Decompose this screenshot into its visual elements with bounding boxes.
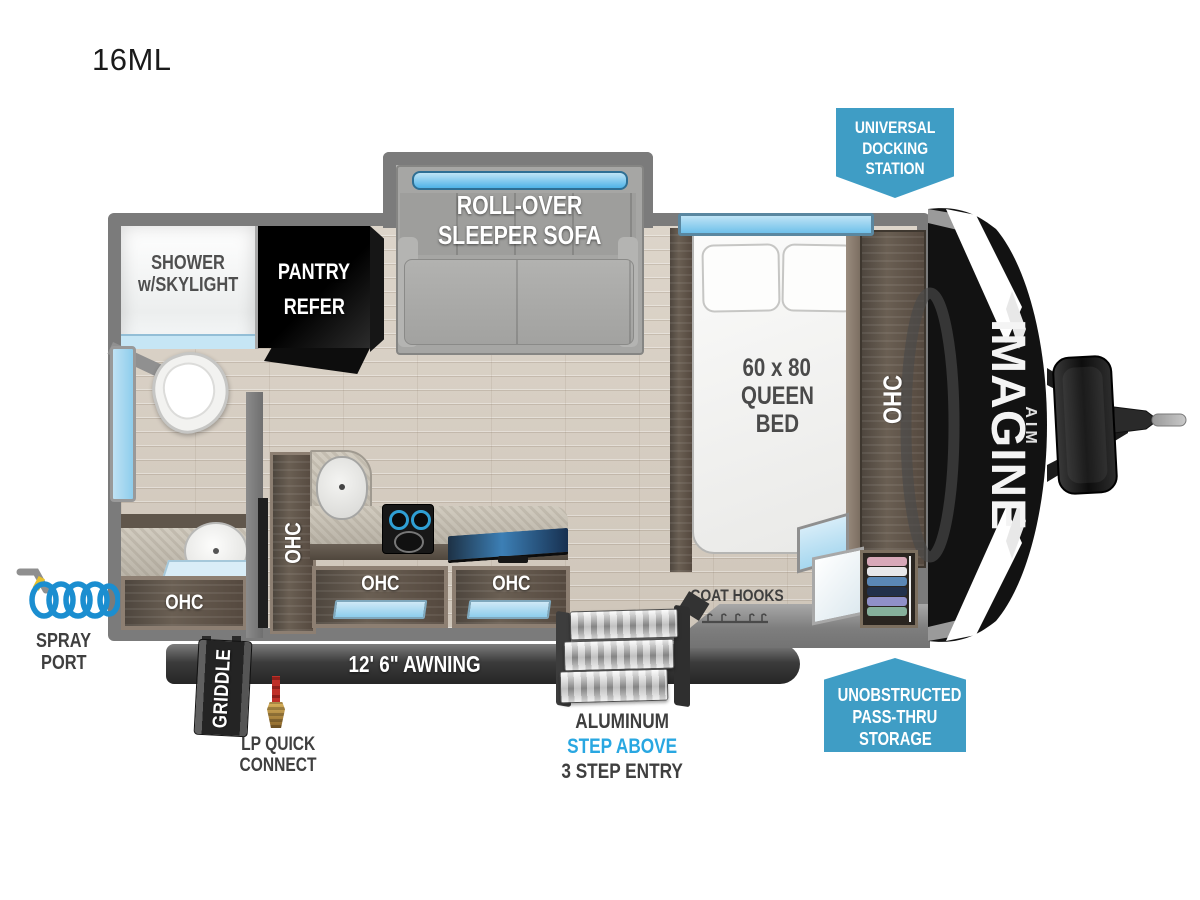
pantry-label: PANTRY REFER	[258, 254, 370, 324]
hitch-jack	[1152, 414, 1186, 426]
burner	[389, 510, 409, 530]
floorplan-diagram: 16ML ROLL-OVER SLEEPER SOFA SHOWER w/SKY…	[0, 0, 1200, 900]
clothes-item	[867, 597, 907, 606]
brand-aim: AIM	[1022, 406, 1039, 447]
mirror-panel	[812, 546, 864, 625]
lp-connect-label: LP QUICK CONNECT	[226, 734, 330, 777]
passthru-storage-callout: UNOBSTRUCTED PASS-THRU STORAGE	[824, 658, 966, 752]
ohc-label: OHC	[165, 591, 203, 615]
step-entry-label: ALUMINUM STEP ABOVE 3 STEP ENTRY	[545, 710, 700, 784]
window-under-cabinet	[467, 600, 552, 619]
awning-label: 12' 6" AWNING	[300, 651, 530, 677]
spray-port-icon	[12, 566, 120, 626]
lp-quick-connect-icon	[267, 702, 285, 728]
sofa-label: ROLL-OVER SLEEPER SOFA	[398, 191, 642, 251]
ohc-label: OHC	[361, 572, 399, 596]
overhead-cabinet-bathroom: OHC	[121, 576, 247, 630]
sleeper-sofa: ROLL-OVER SLEEPER SOFA	[396, 165, 644, 355]
ohc-label: OHC	[280, 522, 306, 564]
pantry-side-panel	[370, 226, 384, 352]
burner	[411, 510, 431, 530]
overhead-cabinet-kitchen-right: OHC	[452, 566, 570, 628]
shower-room: SHOWER w/SKYLIGHT	[121, 226, 259, 349]
clothes-item	[867, 607, 907, 616]
shower-glass-edge	[121, 334, 255, 349]
bed-platform-edge	[670, 228, 692, 572]
step-tread	[560, 669, 669, 704]
queen-bed: 60 x 80 QUEEN BED	[692, 228, 862, 554]
spray-port-label: SPRAY PORT	[18, 630, 110, 675]
sink-drain	[339, 484, 345, 490]
front-cap: IMAGINE AIM	[900, 195, 1200, 655]
window-under-cabinet	[333, 600, 428, 619]
burner-large	[394, 531, 424, 553]
sofa-seat-cushions	[404, 259, 634, 345]
slideout-window	[412, 171, 628, 190]
pantry-refer-cabinet: PANTRY REFER	[258, 226, 370, 348]
step-tread	[564, 639, 675, 672]
ohc-label: OHC	[492, 572, 530, 596]
hitch-coupler	[1114, 407, 1158, 433]
lp-hose	[272, 676, 280, 704]
wardrobe-pole	[909, 556, 911, 622]
griddle-flap: GRIDDLE	[194, 639, 253, 738]
kitchen-sink	[316, 456, 368, 520]
clothes-item	[867, 587, 907, 596]
clothes-item	[867, 577, 907, 586]
propane-tank-highlight	[1062, 366, 1108, 484]
coat-hooks-icon	[700, 610, 770, 624]
toilet-bowl	[156, 356, 223, 425]
overhead-cabinet-kitchen-left: OHC	[312, 566, 448, 628]
griddle-label: GRIDDLE	[209, 648, 236, 729]
cooktop	[382, 504, 434, 554]
pillow	[701, 243, 780, 312]
cabinet-gap	[258, 498, 268, 628]
bathroom-window	[110, 346, 136, 502]
wardrobe	[860, 550, 918, 628]
bed-window	[678, 213, 874, 236]
clothes-item	[867, 567, 907, 576]
bed-label: 60 x 80 QUEEN BED	[694, 354, 860, 438]
step-tread	[570, 609, 679, 641]
shower-label: SHOWER w/SKYLIGHT	[121, 252, 255, 297]
model-title: 16ML	[92, 42, 172, 78]
sink-drain	[213, 548, 219, 554]
tv-stand	[498, 556, 528, 563]
clothes-item	[867, 557, 907, 566]
docking-station-callout: UNIVERSAL DOCKING STATION	[836, 108, 954, 198]
